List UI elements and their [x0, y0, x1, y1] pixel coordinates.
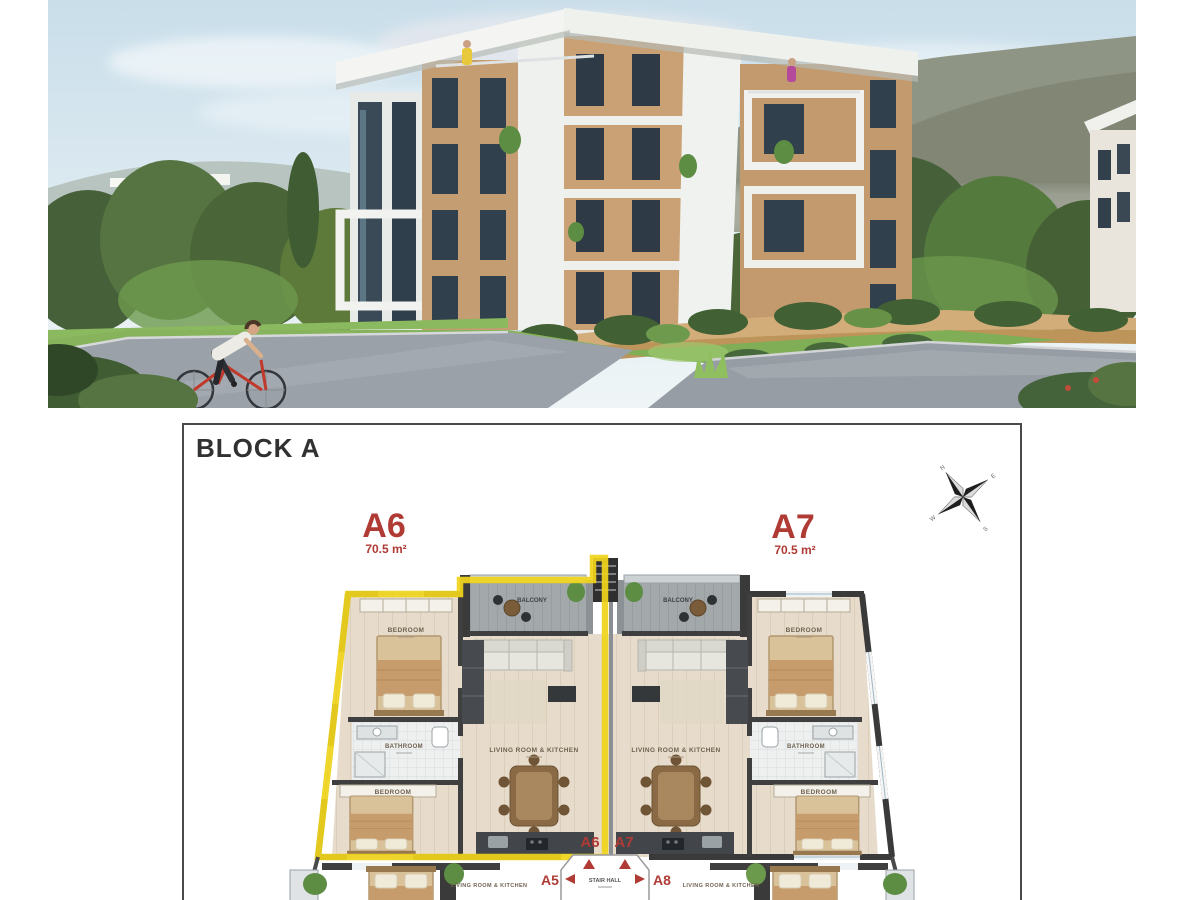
a6-living-label: LIVING ROOM & KITCHEN: [489, 747, 578, 754]
listing-image: BLOCK A: [0, 0, 1200, 900]
a7-balcony-label: BALCONY: [663, 598, 693, 604]
a6-bedroom1-label: BEDROOM: [388, 627, 425, 634]
compass-w: W: [929, 515, 937, 523]
a6-sofa: [474, 640, 572, 671]
a7-living-label: LIVING ROOM & KITCHEN: [631, 747, 720, 754]
compass-s: S: [983, 526, 990, 533]
nav-a5-label: A5: [541, 872, 559, 888]
building-render: [48, 0, 1136, 408]
a7-sofa: [638, 640, 736, 671]
a7-balcony-plant: [625, 582, 643, 602]
compass-e: E: [991, 473, 998, 480]
a7-bedroom2-label: BEDROOM: [801, 789, 838, 796]
nav-a7-label: A7: [614, 834, 633, 851]
plan-drawing: BEDROOM BEDROOM BATHROOM BATHROOM BEDROO…: [290, 558, 914, 900]
a7-kitchen-cabinets: [726, 640, 748, 724]
balcony-person-magenta: [787, 58, 796, 82]
a6-bathroom-label: BATHROOM: [385, 744, 423, 750]
a7-balcony-railing: [624, 575, 740, 583]
a6-tv-unit: [548, 686, 576, 702]
a7-bed-2: [793, 796, 862, 855]
unit-a7-label: A7: [771, 508, 814, 546]
nav-a8-label: A8: [653, 872, 671, 888]
unit-a6-label-group: A6 70.5 m²: [362, 507, 406, 556]
a6-toilet: [432, 727, 448, 747]
render-svg: [48, 0, 1136, 408]
plan-svg: A6 70.5 m² A7 70.5 m² N E S W: [182, 434, 1022, 900]
nav-a6-label: A6: [580, 834, 599, 851]
stair-hall-label: STAIR HALL: [589, 878, 622, 884]
unit-a6-area: 70.5 m²: [365, 542, 406, 556]
a6-balcony-label: BALCONY: [517, 598, 547, 604]
compass-n: N: [939, 465, 946, 472]
a6-bedroom2-label: BEDROOM: [375, 789, 412, 796]
a7-toilet: [762, 727, 778, 747]
a6-bed-1: [374, 636, 444, 716]
lower-left-living-label: LIVING ROOM & KITCHEN: [451, 883, 528, 889]
a6-bed-2: [347, 796, 416, 855]
unit-a7-area: 70.5 m²: [774, 543, 815, 557]
a7-bathroom-label: BATHROOM: [787, 744, 825, 750]
a6-rug: [482, 680, 546, 724]
main-building: [336, 8, 918, 342]
lower-bed-left: [366, 866, 436, 900]
a7-bed-1: [766, 636, 836, 716]
unit-a6-label: A6: [362, 507, 405, 545]
a7-bedroom1-label: BEDROOM: [786, 627, 823, 634]
floor-plan-panel: BLOCK A: [182, 423, 1022, 900]
a6-balcony-plant: [567, 582, 585, 602]
a7-tv-unit: [632, 686, 660, 702]
lower-right-living-label: LIVING ROOM & KITCHEN: [683, 883, 760, 889]
a7-rug: [660, 680, 724, 724]
neighbor-building: [1084, 100, 1136, 312]
a6-kitchen-cabinets: [462, 640, 484, 724]
unit-a7-label-group: A7 70.5 m²: [771, 508, 815, 557]
balcony-person-yellow: [462, 40, 472, 65]
compass-rose: N E S W: [909, 443, 1020, 555]
lower-bed-right: [770, 866, 840, 900]
white-fin-left: [518, 18, 566, 330]
